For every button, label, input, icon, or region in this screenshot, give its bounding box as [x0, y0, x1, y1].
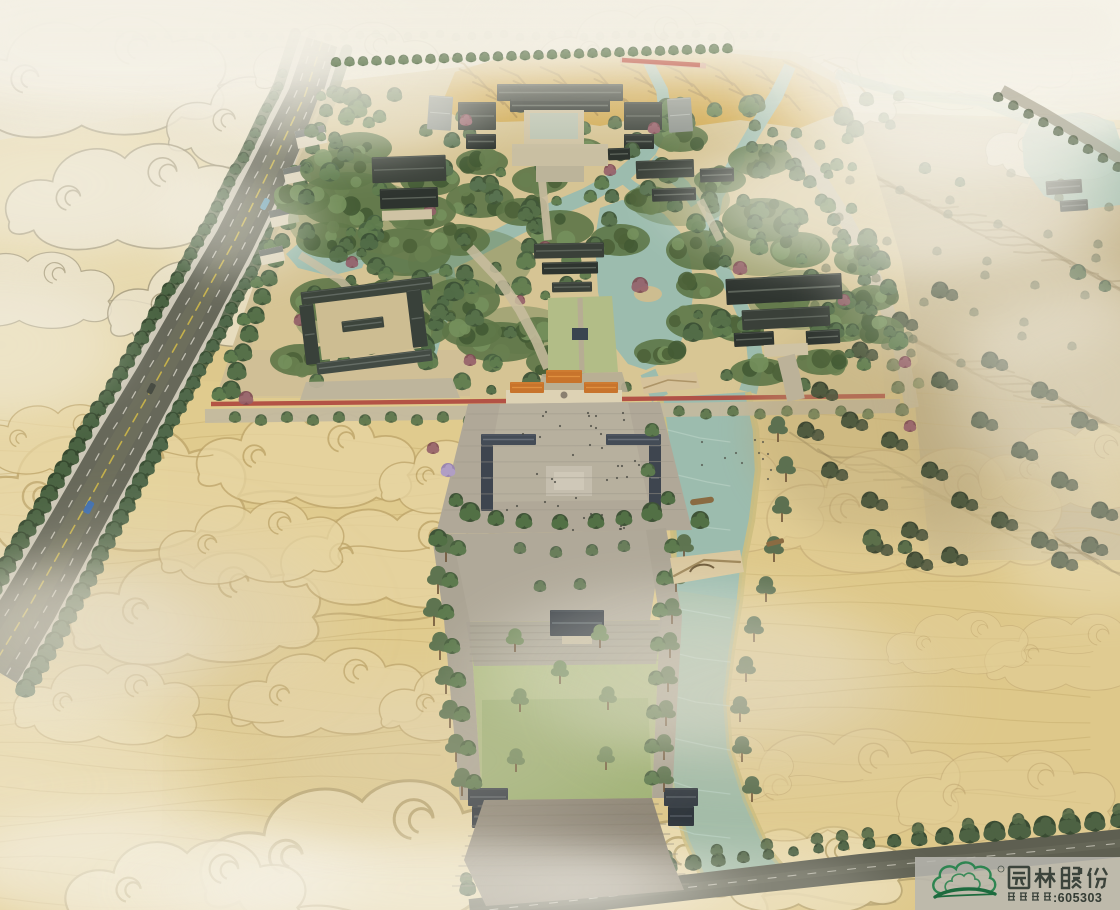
svg-text::605303: :605303	[1053, 891, 1102, 905]
